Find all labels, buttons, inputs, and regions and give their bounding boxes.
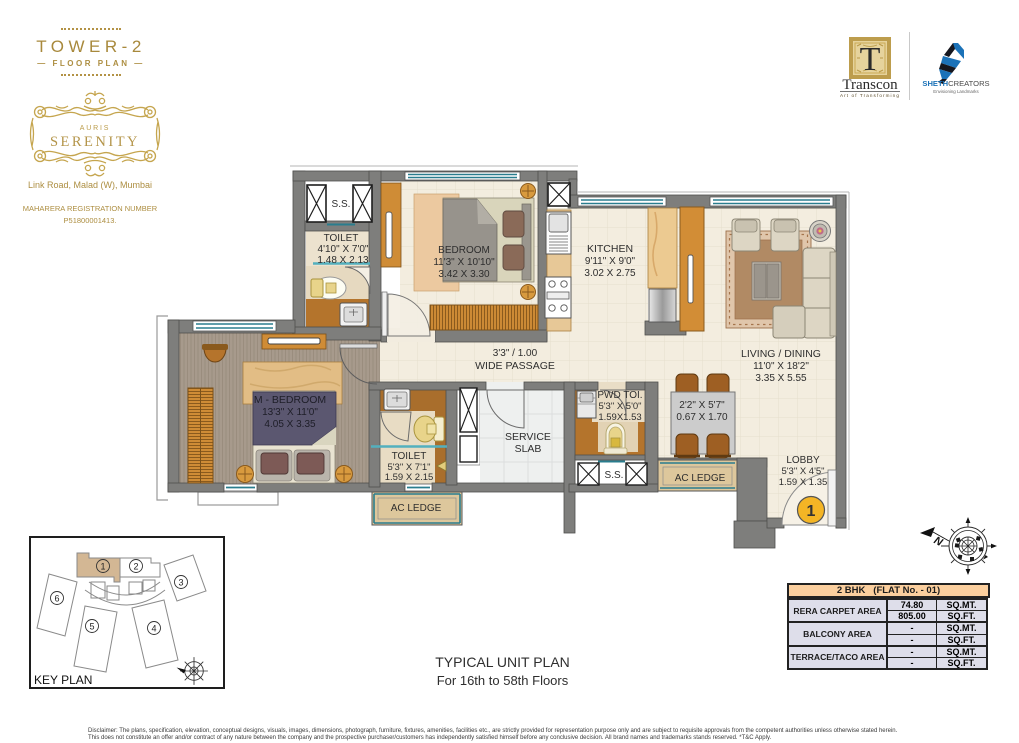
svg-text:TOILET: TOILET	[392, 451, 427, 462]
svg-text:11'3" X 10'10": 11'3" X 10'10"	[433, 257, 495, 268]
svg-text:3: 3	[178, 578, 183, 588]
svg-text:LIVING / DINING: LIVING / DINING	[741, 348, 821, 360]
svg-text:9'11" X 9'0": 9'11" X 9'0"	[585, 256, 636, 267]
svg-text:LOBBY: LOBBY	[786, 455, 820, 466]
svg-text:2: 2	[133, 562, 138, 572]
svg-text:AC LEDGE: AC LEDGE	[391, 503, 442, 514]
svg-text:11'0" X 18'2": 11'0" X 18'2"	[753, 361, 809, 372]
svg-text:1.59 X 1.35: 1.59 X 1.35	[779, 477, 828, 488]
svg-text:3.02 X 2.75: 3.02 X 2.75	[584, 268, 636, 279]
svg-text:WIDE PASSAGE: WIDE PASSAGE	[475, 360, 555, 372]
svg-text:KEY PLAN: KEY PLAN	[34, 673, 92, 687]
svg-text:5: 5	[89, 622, 94, 632]
svg-text:SLAB: SLAB	[515, 443, 542, 455]
svg-text:BEDROOM: BEDROOM	[438, 245, 490, 256]
svg-text:5'3" X 4'5": 5'3" X 4'5"	[781, 466, 824, 477]
svg-text:M - BEDROOM: M - BEDROOM	[254, 394, 326, 406]
svg-text:S.S.: S.S.	[332, 199, 351, 210]
svg-text:5'3" X 5'0": 5'3" X 5'0"	[598, 401, 641, 412]
svg-text:1.48 X 2.13: 1.48 X 2.13	[317, 255, 369, 266]
svg-text:13'3" X 11'0": 13'3" X 11'0"	[262, 407, 318, 418]
svg-text:KITCHEN: KITCHEN	[587, 243, 633, 255]
svg-text:2'2" X 5'7": 2'2" X 5'7"	[679, 400, 725, 411]
svg-text:6: 6	[54, 594, 59, 604]
svg-text:PWD TOI.: PWD TOI.	[597, 390, 642, 401]
svg-text:3.35 X 5.55: 3.35 X 5.55	[755, 373, 807, 384]
svg-text:4'10" X 7'0": 4'10" X 7'0"	[318, 244, 369, 255]
svg-text:4.05 X 3.35: 4.05 X 3.35	[264, 419, 316, 430]
svg-text:4: 4	[151, 624, 156, 634]
svg-text:1.59X1.53: 1.59X1.53	[598, 412, 641, 423]
svg-text:SERVICE: SERVICE	[505, 431, 551, 443]
svg-text:3'3" / 1.00: 3'3" / 1.00	[493, 348, 538, 359]
svg-text:TOILET: TOILET	[324, 233, 359, 244]
svg-text:0.67 X 1.70: 0.67 X 1.70	[676, 412, 728, 423]
svg-text:1.59 X 2.15: 1.59 X 2.15	[385, 472, 434, 483]
svg-text:1: 1	[100, 562, 105, 572]
svg-text:3.42 X 3.30: 3.42 X 3.30	[438, 269, 490, 280]
svg-text:1: 1	[807, 503, 816, 520]
svg-text:AC LEDGE: AC LEDGE	[675, 473, 726, 484]
svg-text:N: N	[932, 535, 946, 550]
svg-text:S.S.: S.S.	[605, 470, 624, 481]
